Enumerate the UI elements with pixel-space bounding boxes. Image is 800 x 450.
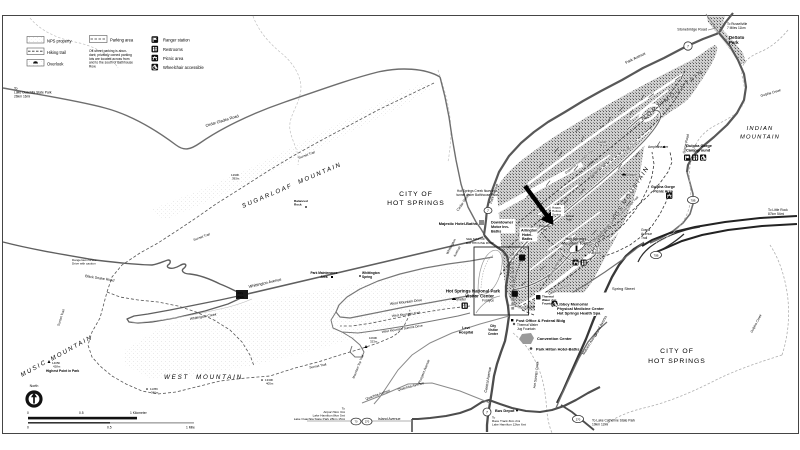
svg-text:Restrooms: Restrooms [163,47,183,52]
svg-text:Gulpha Gorge: Gulpha Gorge [651,185,675,189]
svg-text:Park: Park [238,295,245,299]
svg-text:70B: 70B [691,198,696,202]
svg-text:17: 17 [520,256,524,260]
svg-text:Stonebridge Road: Stonebridge Road [677,28,707,32]
svg-text:Shelter: Shelter [456,298,467,302]
svg-text:Shelter: Shelter [626,173,637,177]
svg-text:Levi: Levi [462,326,469,330]
svg-text:Hospital: Hospital [459,331,474,335]
svg-text:North: North [30,384,39,388]
svg-text:Spring Street: Spring Street [612,286,636,291]
svg-text:Trail: Trail [641,236,648,240]
svg-text:Wheelchair accessible: Wheelchair accessible [163,65,204,70]
svg-text:Hiking trail: Hiking trail [47,50,66,55]
svg-text:1 Mile: 1 Mile [186,425,195,429]
svg-text:87km 54mi: 87km 54mi [768,212,784,216]
svg-text:270: 270 [365,420,370,424]
svg-text:Rock: Rock [294,203,302,207]
svg-text:7: 7 [486,411,488,415]
svg-text:MOUNTAIN: MOUNTAIN [740,135,780,141]
svg-text:Lake Hamilton 12km 6mi: Lake Hamilton 12km 6mi [492,423,526,427]
svg-text:0.5: 0.5 [107,425,112,429]
svg-text:Motor Inn-: Motor Inn- [491,225,510,229]
svg-text:393m: 393m [232,177,240,181]
svg-text:Highest Point in Park: Highest Point in Park [46,369,79,373]
svg-text:70B: 70B [654,253,659,257]
svg-text:Drive with caution: Drive with caution [72,262,96,266]
svg-text:0.5: 0.5 [79,411,84,415]
svg-text:HOT SPRINGS: HOT SPRINGS [648,358,706,365]
svg-text:Row.: Row. [89,65,96,69]
svg-text:MOUNTAIN: MOUNTAIN [196,374,243,381]
svg-text:Baths: Baths [522,237,532,241]
svg-text:NPS property: NPS property [47,39,73,44]
svg-text:INDIAN: INDIAN [747,126,774,132]
svg-text:341m: 341m [599,144,607,148]
svg-text:0: 0 [27,425,29,429]
svg-text:7: 7 [487,209,489,213]
svg-text:Amphitheater: Amphitheater [648,145,669,149]
svg-text:Park: Park [729,40,739,45]
svg-text:Fountain: Fountain [542,302,555,306]
svg-text:346m: 346m [151,391,159,395]
svg-text:Trail: Trail [566,218,572,222]
svg-text:19km 12mi: 19km 12mi [592,423,608,427]
svg-text:Park Hilton Hotel-Baths: Park Hilton Hotel-Baths [536,347,579,352]
svg-text:Overlook: Overlook [47,62,64,67]
svg-text:Majestic Hotel-Baths: Majestic Hotel-Baths [439,221,477,226]
svg-text:7 Miles 11km: 7 Miles 11km [727,26,746,30]
svg-text:Campground: Campground [686,148,711,153]
svg-text:Hot Springs Health Spa: Hot Springs Health Spa [557,311,601,316]
svg-text:Area: Area [320,275,327,279]
svg-text:428m: 428m [53,365,61,369]
svg-text:Center: Center [488,332,499,336]
svg-text:26km 16mi: 26km 16mi [14,95,30,99]
svg-text:Jug Fountain: Jug Fountain [517,327,536,331]
svg-text:7: 7 [687,45,689,49]
svg-text:405m: 405m [266,382,274,386]
svg-text:270: 270 [576,417,581,421]
svg-text:Ranger station: Ranger station [163,38,190,43]
svg-text:Convention Center: Convention Center [537,336,572,341]
svg-text:Mountain Tower: Mountain Tower [562,242,591,246]
svg-text:Fordyce: Fordyce [482,299,494,303]
svg-text:Trail: Trail [541,228,547,232]
svg-text:BATHHOUSE ROW: BATHHOUSE ROW [466,241,494,245]
svg-text:Bus Depot: Bus Depot [495,408,515,413]
svg-text:Island Avenue: Island Avenue [378,417,401,421]
svg-text:323m: 323m [370,340,378,344]
svg-text:Lake Ouachita State Park 28km: Lake Ouachita State Park 28km 15mi [294,417,346,421]
svg-text:WEST: WEST [164,374,189,381]
svg-text:Baths: Baths [491,230,501,234]
svg-text:Picnic area: Picnic area [163,56,184,61]
svg-text:17: 17 [513,293,517,297]
svg-text:CITY OF: CITY OF [399,191,433,198]
svg-text:Spring: Spring [552,213,561,217]
svg-text:Spring: Spring [362,275,372,279]
svg-text:1 Kilometer: 1 Kilometer [130,411,148,415]
svg-text:HOT SPRINGS: HOT SPRINGS [387,200,445,207]
svg-text:CITY OF: CITY OF [660,348,694,355]
svg-text:Hot Springs: Hot Springs [566,237,587,241]
svg-text:0: 0 [27,411,29,415]
svg-text:Parking area: Parking area [110,38,134,43]
svg-text:Downtowner: Downtowner [491,221,514,225]
